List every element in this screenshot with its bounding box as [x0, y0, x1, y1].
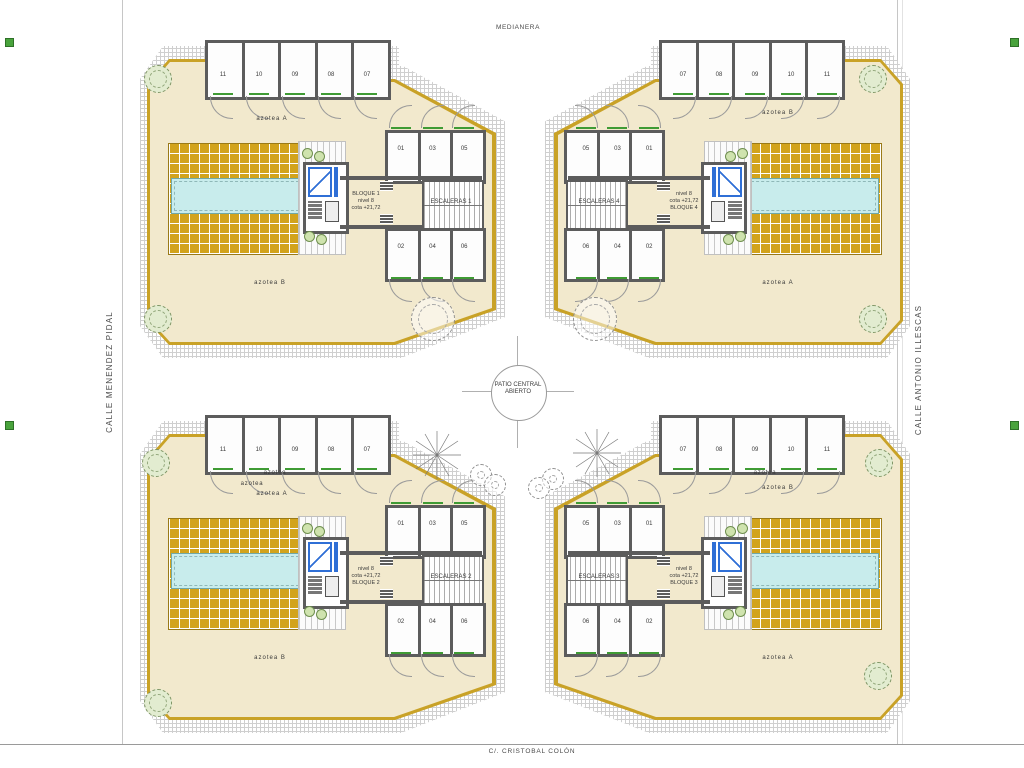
- stairs-label: ESCALERAS 1: [422, 199, 480, 205]
- room-number: 05: [570, 146, 602, 152]
- azotea-small-label: azotea: [212, 481, 292, 487]
- storage-number: 08: [313, 72, 349, 78]
- block-title-line: BLOQUE 2: [344, 580, 388, 587]
- block-title-line: cota +21,72: [662, 198, 706, 205]
- room-number: 05: [448, 146, 480, 152]
- tree-icon: [484, 474, 506, 496]
- room-numbers-top: 010305: [385, 146, 480, 152]
- bush-icon: [864, 662, 892, 690]
- azotea-label-bottom: azotea A: [718, 655, 838, 661]
- storage-numbers: 1110090807: [205, 72, 385, 78]
- tree-icon: [411, 297, 455, 341]
- storage-number: 08: [313, 447, 349, 453]
- tree-icon: [573, 297, 617, 341]
- edge-planter-marker: [5, 38, 14, 47]
- bush-icon: [865, 449, 893, 477]
- azotea-small-label: azotea: [725, 470, 805, 476]
- storage-number: 10: [773, 72, 809, 78]
- room-number: 02: [633, 619, 665, 625]
- edge-planter-marker: [1010, 38, 1019, 47]
- room-number: 01: [385, 521, 417, 527]
- room-numbers-bottom: 060402: [570, 619, 665, 625]
- block-title-line: nivel 8: [344, 566, 388, 573]
- room-numbers-top: 050301: [570, 521, 665, 527]
- azotea-label-bottom: azotea B: [210, 280, 330, 286]
- bush-icon: [144, 305, 172, 333]
- block-title-line: cota +21,72: [344, 205, 388, 212]
- bush-icon: [142, 449, 170, 477]
- room-numbers-bottom: 020406: [385, 619, 480, 625]
- block-title-line: BLOQUE 1: [344, 191, 388, 198]
- street-boundary-bottom: [0, 744, 1024, 745]
- storage-number: 10: [241, 447, 277, 453]
- room-number: 01: [385, 146, 417, 152]
- azotea-label-top: azotea A: [212, 491, 332, 497]
- room-number: 04: [602, 619, 634, 625]
- street-name-left: CALLE MENENDEZ PIDAL: [105, 292, 119, 452]
- palm-tree-icon: [569, 425, 625, 486]
- storage-number: 07: [665, 72, 701, 78]
- room-number: 02: [385, 244, 417, 250]
- block-title-line: BLOQUE 3: [662, 580, 706, 587]
- storage-numbers: 0708091011: [665, 447, 845, 453]
- storage-numbers: 1110090807: [205, 447, 385, 453]
- block-title-line: nivel 8: [662, 566, 706, 573]
- patio-central-label: PATIO CENTRAL ABIERTO: [481, 382, 555, 396]
- storage-number: 08: [701, 447, 737, 453]
- azotea-label-bottom: azotea B: [210, 655, 330, 661]
- bush-icon: [859, 65, 887, 93]
- room-number: 06: [570, 619, 602, 625]
- patio-label-line1: PATIO CENTRAL: [481, 382, 555, 389]
- azotea-label-top: azotea A: [212, 116, 332, 122]
- medianera-label: MEDIANERA: [448, 24, 588, 31]
- storage-number: 09: [277, 72, 313, 78]
- room-number: 02: [385, 619, 417, 625]
- room-number: 05: [448, 521, 480, 527]
- block-title: nivel 8cota +21,72BLOQUE 2: [344, 566, 388, 587]
- room-numbers-bottom: 020406: [385, 244, 480, 250]
- block-title-line: cota +21,72: [662, 573, 706, 580]
- storage-number: 09: [277, 447, 313, 453]
- block-title-line: cota +21,72: [344, 573, 388, 580]
- tree-icon: [528, 477, 550, 499]
- storage-number: 07: [349, 72, 385, 78]
- street-boundary-left: [122, 0, 123, 744]
- storage-number: 10: [773, 447, 809, 453]
- stairs-label: ESCALERAS 4: [570, 199, 628, 205]
- block-title-line: nivel 8: [662, 191, 706, 198]
- stairs-label: ESCALERAS 2: [422, 574, 480, 580]
- azotea-label-bottom: azotea A: [718, 280, 838, 286]
- room-number: 01: [633, 146, 665, 152]
- storage-number: 11: [205, 72, 241, 78]
- block-title: nivel 8cota +21,72BLOQUE 3: [662, 566, 706, 587]
- edge-planter-marker: [1010, 421, 1019, 430]
- storage-number: 09: [737, 447, 773, 453]
- room-number: 06: [570, 244, 602, 250]
- storage-number: 07: [665, 447, 701, 453]
- storage-number: 08: [701, 72, 737, 78]
- storage-numbers: 0708091011: [665, 72, 845, 78]
- block-title: BLOQUE 1nivel 8cota +21,72: [344, 191, 388, 212]
- room-number: 03: [602, 521, 634, 527]
- room-numbers-top: 010305: [385, 521, 480, 527]
- bush-icon: [859, 305, 887, 333]
- storage-number: 07: [349, 447, 385, 453]
- patio-label-line2: ABIERTO: [481, 389, 555, 396]
- room-number: 06: [448, 244, 480, 250]
- azotea-label-top: azotea B: [718, 485, 838, 491]
- storage-number: 11: [809, 72, 845, 78]
- storage-number: 09: [737, 72, 773, 78]
- room-numbers-bottom: 060402: [570, 244, 665, 250]
- bush-icon: [144, 65, 172, 93]
- azotea-small-label: azotea: [235, 470, 315, 476]
- site-floor-plan: MEDIANERA CALLE MENENDEZ PIDAL CALLE ANT…: [0, 0, 1024, 768]
- storage-number: 10: [241, 72, 277, 78]
- stairs-label: ESCALERAS 3: [570, 574, 628, 580]
- block-title: nivel 8cota +21,72BLOQUE 4: [662, 191, 706, 212]
- street-name-bottom: C/. CRISTOBAL COLÓN: [432, 748, 632, 755]
- bush-icon: [144, 689, 172, 717]
- street-name-right: CALLE ANTONIO ILLESCAS: [914, 290, 928, 450]
- room-number: 02: [633, 244, 665, 250]
- room-number: 05: [570, 521, 602, 527]
- room-number: 03: [417, 146, 449, 152]
- room-number: 04: [417, 244, 449, 250]
- room-number: 03: [417, 521, 449, 527]
- block-title-line: nivel 8: [344, 198, 388, 205]
- palm-tree-icon: [409, 427, 465, 488]
- room-number: 03: [602, 146, 634, 152]
- room-number: 04: [417, 619, 449, 625]
- edge-planter-marker: [5, 421, 14, 430]
- block-title-line: BLOQUE 4: [662, 205, 706, 212]
- room-number: 01: [633, 521, 665, 527]
- room-number: 06: [448, 619, 480, 625]
- storage-number: 11: [205, 447, 241, 453]
- room-number: 04: [602, 244, 634, 250]
- azotea-label-top: azotea B: [718, 110, 838, 116]
- room-numbers-top: 050301: [570, 146, 665, 152]
- storage-number: 11: [809, 447, 845, 453]
